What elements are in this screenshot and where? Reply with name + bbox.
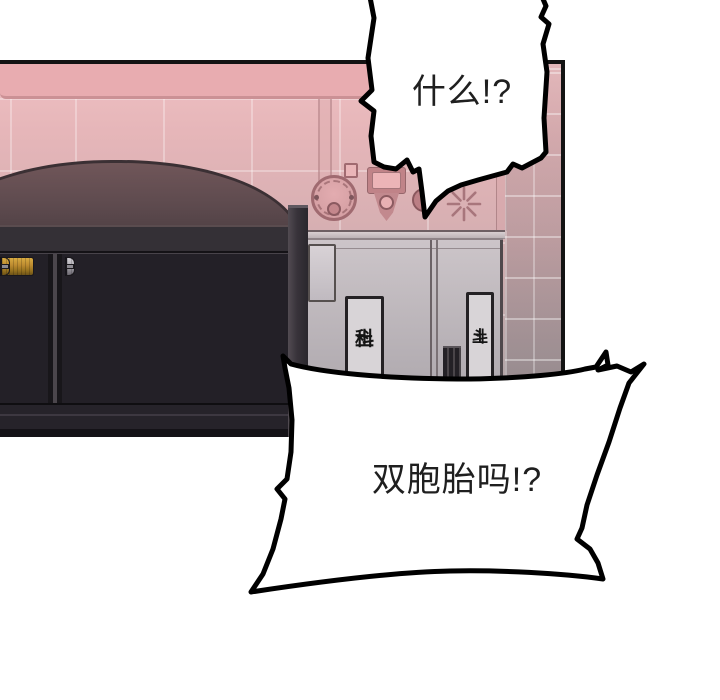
speech-text-top: 什么!? (392, 64, 532, 113)
gauge-dot (314, 195, 319, 200)
comic-page: 土 科 土 斗 (0, 0, 720, 700)
machine-top-rail (0, 225, 302, 253)
speech-text-bottom: 双胞胎吗!? (362, 452, 552, 501)
roller-row (62, 254, 67, 279)
rack-divider (48, 254, 62, 404)
pink-beam (0, 64, 382, 99)
roller-rack-left (0, 254, 48, 404)
roller-axle (1, 264, 9, 269)
cabinet-door (308, 244, 336, 302)
gauge-knob (327, 202, 341, 216)
roller-axle (66, 264, 74, 269)
